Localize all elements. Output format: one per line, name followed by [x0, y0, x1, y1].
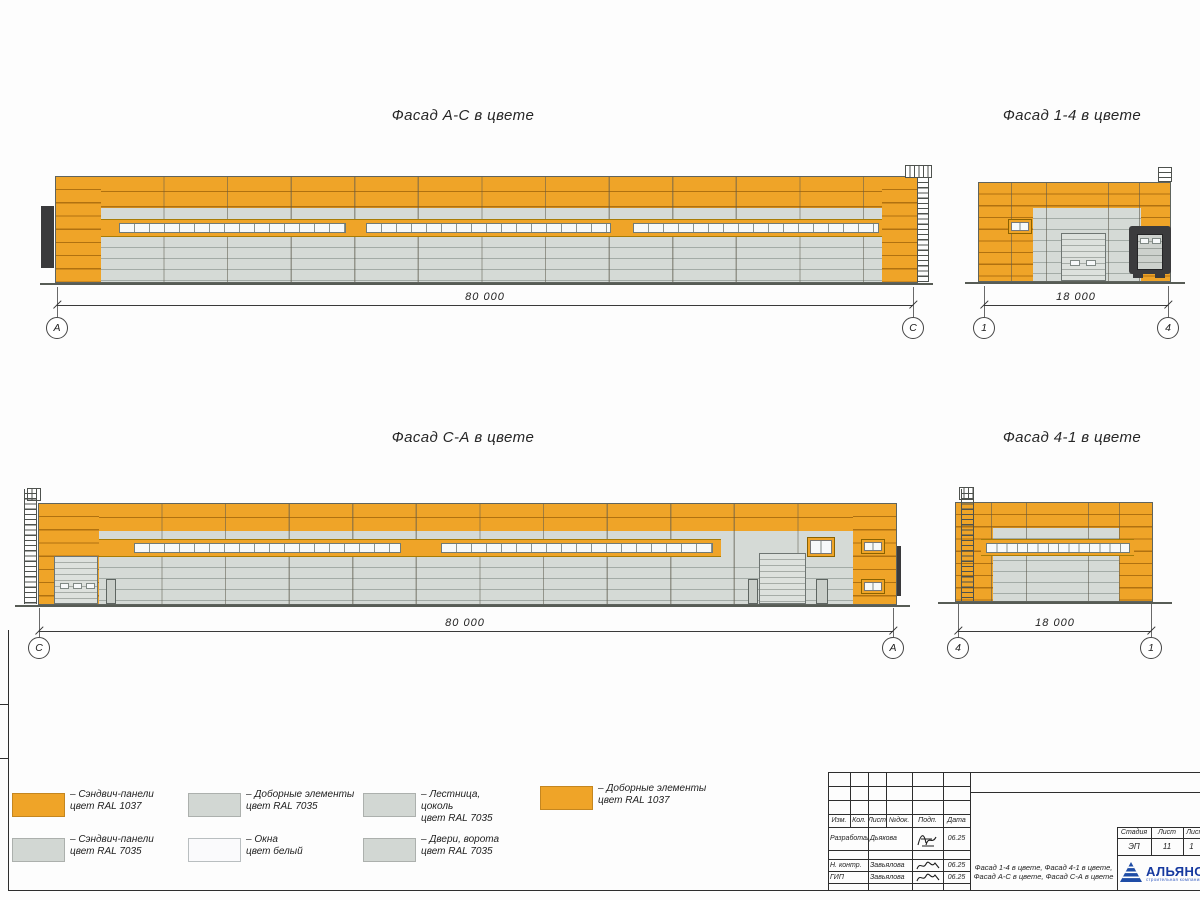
roof-ladder — [917, 178, 929, 282]
window-strip — [633, 223, 879, 233]
company-subtitle: строительная компания — [1146, 878, 1200, 883]
roof-vent — [1158, 167, 1172, 182]
tb-date: 06.25 — [943, 859, 970, 871]
dock-door — [1137, 234, 1163, 270]
facade-14-title: Фасад 1-4 в цвете — [960, 107, 1184, 124]
dock-foot — [1155, 274, 1165, 278]
legend-label: – Доборные элементы цвет RAL 1037 — [598, 783, 718, 807]
tb-col-podp: Подп. — [912, 814, 943, 827]
stage-label: Стадия — [1117, 827, 1151, 838]
extension-line — [958, 604, 959, 637]
dock-shelter — [1129, 226, 1171, 274]
title-block: Изм. Кол. Лист №док. Подп. Дата Разработ… — [0, 0, 1200, 900]
dock-window — [1140, 238, 1149, 244]
dock-window — [1152, 238, 1161, 244]
tb-name: Завьялова — [868, 859, 912, 871]
tb-role: ГИП — [828, 871, 868, 883]
grid-bubble-1: 1 — [1140, 637, 1162, 659]
signature — [915, 859, 942, 871]
tb-col-izm: Изм. — [828, 814, 850, 827]
orange-left-band — [56, 177, 101, 282]
sheets-label: Листов — [1183, 827, 1200, 838]
sectional-gate — [54, 556, 98, 604]
gate-window — [60, 583, 69, 589]
panel-joint — [1108, 183, 1109, 281]
window-pane — [864, 582, 882, 591]
gate-window — [86, 583, 95, 589]
drawing-sheet: Фасад А-С в цвете Фасад 1-4 в цвете Фаса… — [0, 0, 1200, 900]
legend-label: – Двери, ворота цвет RAL 7035 — [421, 834, 531, 858]
gate-window — [73, 583, 82, 589]
facade-ca-drawing — [38, 503, 897, 605]
wall-ladder — [961, 489, 974, 601]
sectional-gate — [1061, 233, 1106, 281]
window-strip — [134, 543, 401, 553]
legend-label: – Лестница, цоколь цвет RAL 7035 — [421, 789, 531, 825]
window-strip — [366, 223, 611, 233]
tb-name: Завьялова — [868, 871, 912, 883]
sheet-label: Лист — [1151, 827, 1183, 838]
grid-bubble-4: 4 — [947, 637, 969, 659]
extension-line — [1151, 604, 1152, 637]
legend-label: – Доборные элементы цвет RAL 7035 — [246, 789, 364, 813]
wall-ladder — [24, 489, 37, 604]
legend: – Сэндвич-панели цвет RAL 1037 – Сэндвич… — [0, 780, 720, 880]
tb-col-data: Дата — [943, 814, 970, 827]
legend-swatch — [540, 786, 593, 810]
frame-bottom-line — [8, 890, 1200, 891]
tb-date: 06.25 — [943, 827, 970, 850]
stage-value: ЭП — [1117, 838, 1151, 855]
ground-line — [965, 282, 1185, 284]
legend-swatch — [363, 838, 416, 862]
tb-date: 06.25 — [943, 871, 970, 883]
extension-line — [893, 608, 894, 637]
gate-window — [1086, 260, 1096, 266]
person-door — [748, 579, 758, 604]
dimension-value: 80 000 — [425, 291, 545, 303]
ground-line — [15, 605, 910, 607]
grid-bubble-c: С — [902, 317, 924, 339]
legend-swatch — [363, 793, 416, 817]
window — [807, 537, 835, 557]
window-pane — [864, 542, 882, 551]
ground-line — [938, 602, 1172, 604]
tb-role: Н. контр. — [828, 859, 868, 871]
person-door — [106, 579, 116, 604]
window-strip — [119, 223, 346, 233]
window — [861, 579, 885, 594]
downpipe — [897, 546, 901, 596]
document-title: Фасад 1-4 в цвете, Фасад 4-1 в цвете, Фа… — [972, 853, 1115, 891]
logo-triangle-icon — [1120, 862, 1142, 887]
facade-14-drawing — [978, 182, 1171, 282]
dimension-value: 18 000 — [1016, 291, 1136, 303]
facade-41-title: Фасад 4-1 в цвете — [960, 429, 1184, 446]
sheets-value: 1 — [1183, 838, 1200, 855]
sectional-gate — [759, 553, 806, 604]
window-pane — [1011, 222, 1029, 231]
company-name: АЛЬЯНС — [1146, 865, 1200, 878]
dimension-value: 80 000 — [405, 617, 525, 629]
window-strip — [441, 543, 713, 553]
grid-bubble-4: 4 — [1157, 317, 1179, 339]
sheet-value: 11 — [1151, 838, 1183, 855]
grid-bubble-a: А — [882, 637, 904, 659]
tb-col-list: Лист — [868, 814, 886, 827]
facade-ac-title: Фасад А-С в цвете — [338, 107, 588, 124]
grid-bubble-1: 1 — [973, 317, 995, 339]
frame-tick — [0, 704, 8, 705]
facade-ac-drawing — [55, 176, 918, 283]
window — [1008, 219, 1032, 234]
legend-swatch — [188, 793, 241, 817]
dimension-value: 18 000 — [995, 617, 1115, 629]
frame-tick — [0, 758, 8, 759]
signature — [914, 829, 942, 849]
grid-bubble-c: С — [28, 637, 50, 659]
panel-joint — [1046, 183, 1047, 281]
company-logo: АЛЬЯНС строительная компания — [1120, 858, 1200, 890]
legend-swatch — [12, 793, 65, 817]
tb-name: Дьякова — [868, 827, 912, 850]
dock-foot — [1133, 274, 1143, 278]
tb-col-kol: Кол. — [850, 814, 868, 827]
legend-swatch — [12, 838, 65, 862]
dimension-line — [958, 631, 1151, 632]
orange-right-band — [882, 177, 917, 282]
window-pane — [810, 540, 832, 554]
tb-role: Разработал — [828, 827, 868, 850]
window — [861, 539, 885, 554]
facade-ca-title: Фасад С-А в цвете — [338, 429, 588, 446]
gate-window — [1070, 260, 1080, 266]
legend-swatch — [188, 838, 241, 862]
window-strip — [986, 543, 1130, 553]
legend-label: – Сэндвич-панели цвет RAL 7035 — [70, 834, 185, 858]
dimension-line — [984, 305, 1168, 306]
ground-line — [40, 283, 933, 285]
tb-col-ndok: №док. — [886, 814, 912, 827]
legend-label: – Окна цвет белый — [246, 834, 364, 858]
roof-ladder-cage — [905, 165, 932, 178]
dimension-line — [57, 305, 913, 306]
dimension-line — [39, 631, 893, 632]
person-door — [816, 579, 828, 604]
downpipe — [41, 206, 54, 268]
signature — [915, 871, 942, 883]
facade-41-drawing — [955, 502, 1153, 602]
extension-line — [39, 608, 40, 637]
grid-bubble-a: А — [46, 317, 68, 339]
legend-label: – Сэндвич-панели цвет RAL 1037 — [70, 789, 185, 813]
